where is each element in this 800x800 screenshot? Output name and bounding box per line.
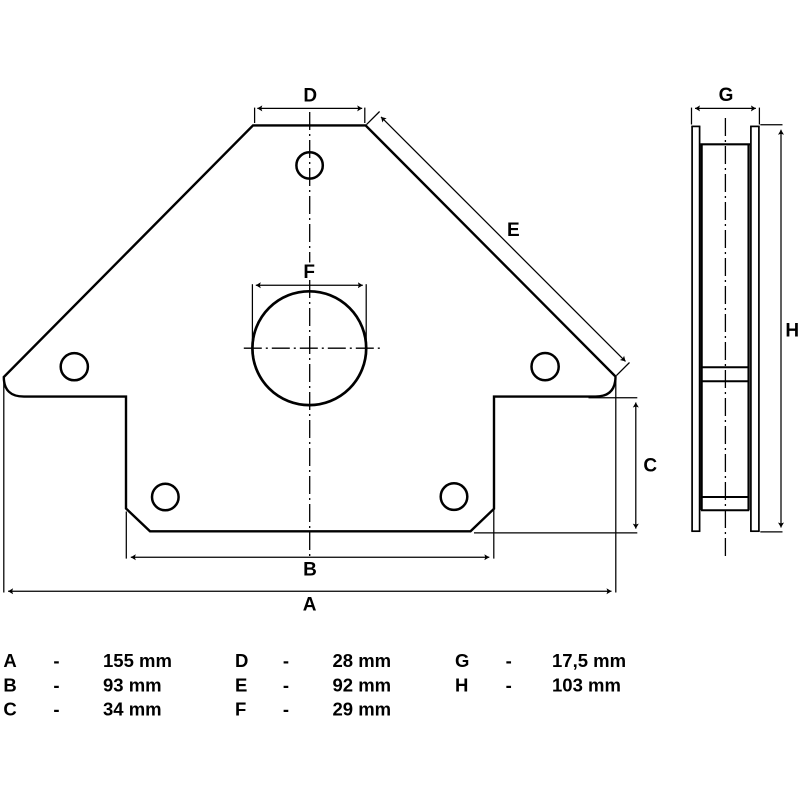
svg-text:D: D (303, 86, 317, 107)
svg-text:C: C (3, 698, 16, 719)
svg-text:28 mm: 28 mm (333, 650, 392, 671)
svg-text:93 mm: 93 mm (103, 674, 162, 695)
svg-text:C: C (643, 456, 657, 477)
svg-text:92 mm: 92 mm (333, 674, 392, 695)
svg-text:F: F (235, 698, 246, 719)
svg-text:G: G (455, 650, 469, 671)
svg-text:H: H (455, 674, 468, 695)
svg-text:-: - (53, 650, 59, 671)
svg-text:A: A (303, 595, 317, 616)
svg-text:34 mm: 34 mm (103, 698, 162, 719)
svg-text:-: - (53, 698, 59, 719)
svg-text:103 mm: 103 mm (552, 674, 621, 695)
svg-text:E: E (507, 220, 520, 241)
svg-text:H: H (785, 320, 799, 341)
svg-text:29 mm: 29 mm (333, 698, 392, 719)
svg-text:G: G (719, 85, 734, 106)
svg-text:-: - (53, 674, 59, 695)
svg-text:-: - (283, 674, 289, 695)
svg-text:-: - (506, 674, 512, 695)
svg-text:155 mm: 155 mm (103, 650, 172, 671)
svg-text:A: A (3, 650, 16, 671)
svg-text:-: - (506, 650, 512, 671)
svg-text:F: F (303, 262, 315, 283)
svg-text:E: E (235, 674, 247, 695)
svg-text:D: D (235, 650, 248, 671)
svg-text:17,5 mm: 17,5 mm (552, 650, 626, 671)
svg-text:-: - (283, 698, 289, 719)
svg-text:B: B (3, 674, 16, 695)
svg-text:-: - (283, 650, 289, 671)
svg-text:B: B (303, 559, 317, 580)
